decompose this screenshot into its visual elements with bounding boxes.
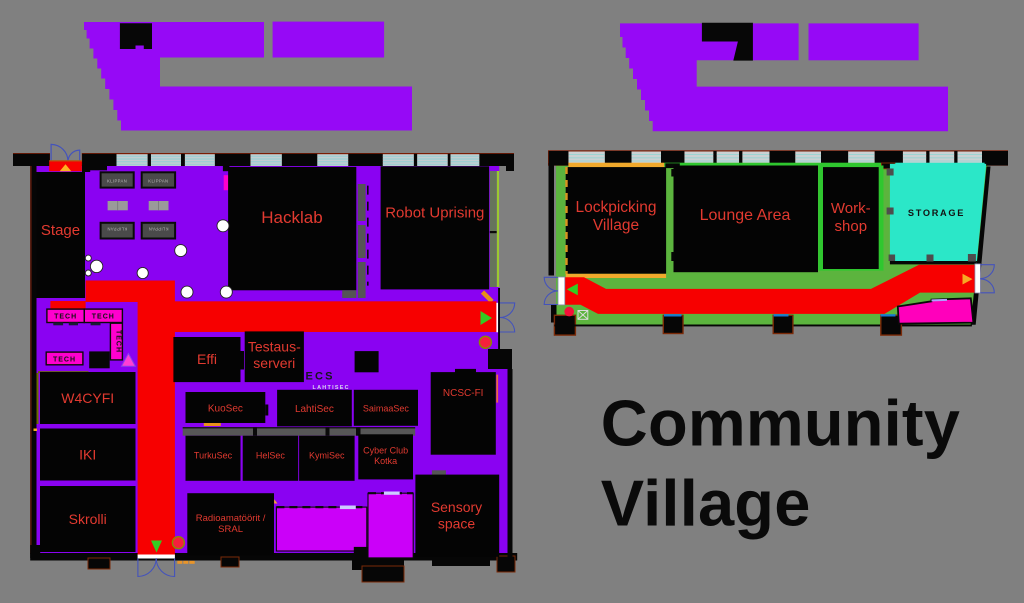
svg-text:Work-: Work- bbox=[831, 200, 871, 217]
svg-text:shop: shop bbox=[835, 218, 868, 235]
svg-text:Cyber Club: Cyber Club bbox=[363, 446, 408, 456]
svg-text:Stage: Stage bbox=[41, 222, 80, 239]
svg-text:KLIPPAN: KLIPPAN bbox=[107, 227, 127, 232]
svg-text:TECH: TECH bbox=[53, 356, 76, 363]
svg-text:Testaus-: Testaus- bbox=[248, 339, 301, 355]
svg-text:Sensory: Sensory bbox=[431, 499, 482, 515]
svg-text:KLIPPAN: KLIPPAN bbox=[148, 179, 168, 184]
svg-text:serveri: serveri bbox=[253, 355, 295, 371]
svg-text:NCSC-FI: NCSC-FI bbox=[443, 388, 484, 399]
svg-text:TECH: TECH bbox=[92, 314, 115, 321]
svg-text:SaimaaSec: SaimaaSec bbox=[363, 404, 410, 414]
svg-text:Effi: Effi bbox=[197, 351, 217, 367]
svg-text:SRAL: SRAL bbox=[218, 524, 243, 535]
svg-text:space: space bbox=[438, 516, 476, 532]
svg-text:KLIPPAN: KLIPPAN bbox=[107, 179, 127, 184]
svg-text:KuoSec: KuoSec bbox=[208, 404, 243, 415]
svg-text:Village: Village bbox=[601, 467, 811, 540]
svg-text:W4CYFI: W4CYFI bbox=[61, 390, 114, 406]
svg-text:Lockpicking: Lockpicking bbox=[576, 199, 657, 216]
svg-text:Radioamatöörit /: Radioamatöörit / bbox=[196, 513, 266, 524]
svg-text:KymiSec: KymiSec bbox=[309, 451, 345, 461]
svg-text:IKI: IKI bbox=[79, 447, 96, 463]
svg-text:STORAGE: STORAGE bbox=[908, 208, 965, 218]
svg-text:TECH: TECH bbox=[54, 314, 77, 321]
svg-text:Village: Village bbox=[593, 217, 639, 234]
svg-text:Lounge Area: Lounge Area bbox=[700, 207, 791, 224]
svg-text:Robot Uprising: Robot Uprising bbox=[385, 205, 484, 222]
svg-text:TurkuSec: TurkuSec bbox=[194, 451, 233, 461]
svg-text:Community: Community bbox=[601, 387, 960, 460]
svg-text:Kotka: Kotka bbox=[374, 456, 397, 466]
svg-text:KLIPPAN: KLIPPAN bbox=[148, 227, 168, 232]
svg-text:ECS: ECS bbox=[306, 371, 335, 383]
svg-text:LahtiSec: LahtiSec bbox=[295, 404, 334, 415]
svg-text:Skrolli: Skrolli bbox=[69, 511, 107, 527]
svg-text:HelSec: HelSec bbox=[256, 451, 286, 461]
svg-text:Hacklab: Hacklab bbox=[261, 208, 322, 227]
svg-text:TECH: TECH bbox=[114, 330, 121, 353]
